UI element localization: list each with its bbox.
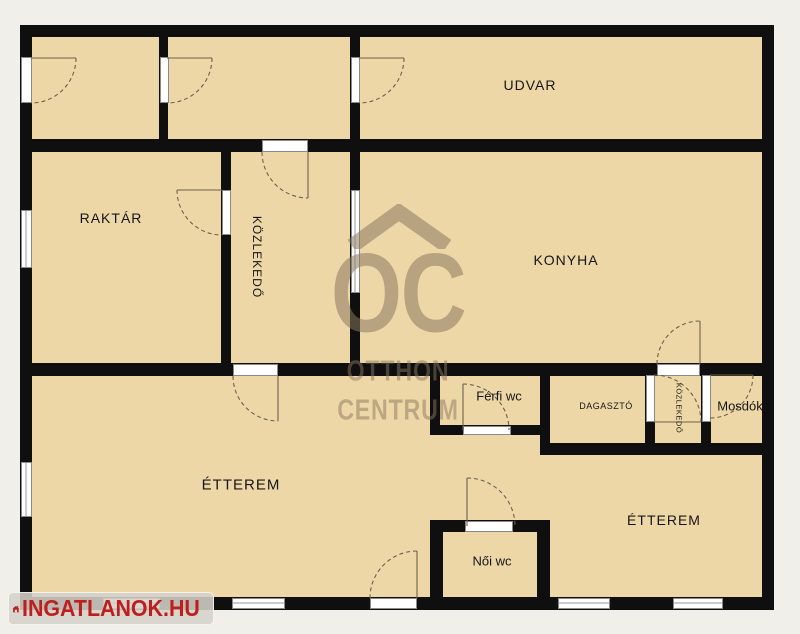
room-label-ferfi-wc: Férfi wc: [476, 389, 522, 404]
room-label-raktar: RAKTÁR: [80, 210, 143, 226]
room-label-etterem-right: ÉTTEREM: [627, 512, 701, 528]
door-swing-arcs: [0, 0, 800, 634]
house-icon: [12, 594, 20, 624]
room-label-noi-wc: Női wc: [472, 554, 511, 569]
room-label-udvar: UDVAR: [504, 77, 557, 93]
room-label-mosdok: Mosdók: [717, 399, 763, 414]
room-label-etterem-left: ÉTTEREM: [202, 477, 281, 494]
ingatlanok-logo-text: INGATLANOK.HU: [22, 595, 200, 622]
room-label-kozlekedo-small: KÖZLEKEDŐ: [675, 383, 684, 433]
room-label-kozlekedo-main: KÖZLEKEDŐ: [250, 216, 264, 298]
ingatlanok-logo: INGATLANOK.HU: [8, 592, 214, 625]
room-label-dagaszto: DAGASZTÓ: [579, 401, 633, 411]
room-label-konyha: KONYHA: [533, 252, 598, 268]
floor-plan: UDVAR RAKTÁR KÖZLEKEDŐ KONYHA Férfi wc D…: [0, 0, 800, 634]
